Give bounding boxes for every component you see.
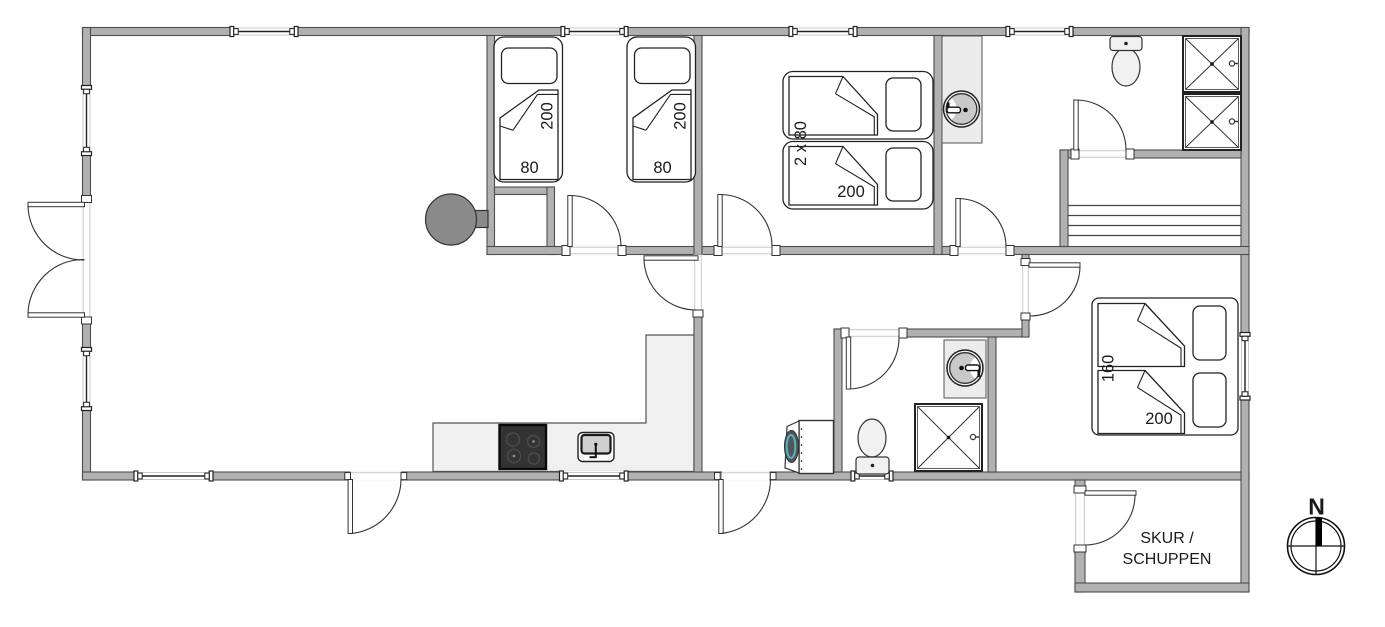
svg-text:2 x 80: 2 x 80	[792, 121, 810, 166]
svg-text:200: 200	[539, 102, 557, 130]
svg-text:80: 80	[520, 159, 538, 177]
svg-text:80: 80	[653, 159, 671, 177]
svg-text:200: 200	[837, 183, 865, 201]
svg-text:N: N	[1308, 494, 1325, 520]
svg-text:SCHUPPEN: SCHUPPEN	[1123, 551, 1212, 568]
svg-text:200: 200	[1145, 410, 1173, 428]
svg-text:SKUR /: SKUR /	[1140, 530, 1194, 547]
svg-text:200: 200	[672, 102, 690, 130]
svg-text:160: 160	[1100, 355, 1118, 383]
